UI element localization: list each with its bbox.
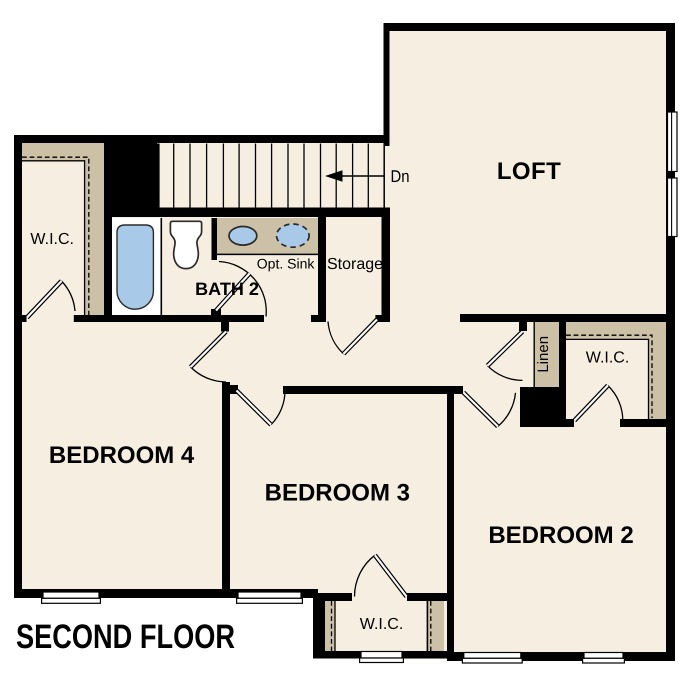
svg-text:W.I.C.: W.I.C. [586,349,630,366]
svg-text:W.I.C.: W.I.C. [30,231,74,248]
svg-text:BEDROOM 2: BEDROOM 2 [488,522,633,549]
svg-text:Linen: Linen [535,336,552,373]
svg-text:W.I.C.: W.I.C. [360,616,404,633]
svg-text:Opt. Sink: Opt. Sink [257,255,316,271]
svg-text:Dn: Dn [391,167,410,186]
svg-text:BEDROOM 3: BEDROOM 3 [265,479,410,506]
svg-text:BEDROOM 4: BEDROOM 4 [49,442,195,469]
svg-text:BATH 2: BATH 2 [195,279,259,299]
svg-text:Storage: Storage [327,256,383,273]
svg-text:SECOND FLOOR: SECOND FLOOR [16,618,235,656]
svg-text:LOFT: LOFT [497,158,561,185]
